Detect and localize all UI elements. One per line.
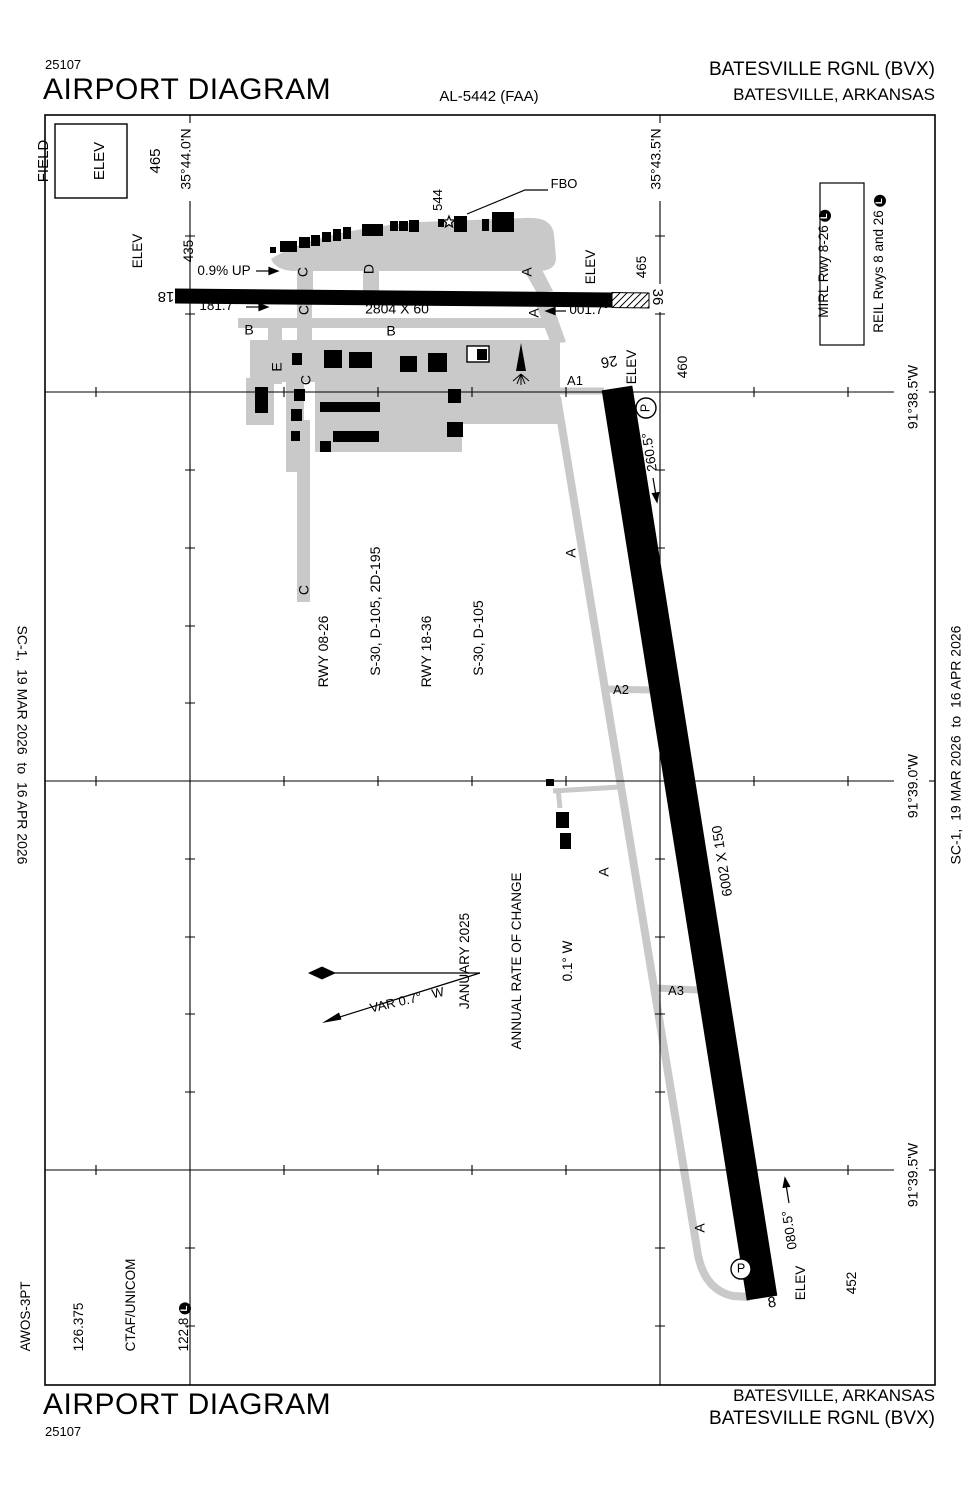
city-bottom: BATESVILLE, ARKANSAS xyxy=(733,1387,935,1405)
city-top: BATESVILLE, ARKANSAS xyxy=(733,86,935,104)
elev-block-rwy36: ELEV 465 xyxy=(547,250,667,285)
fbo-leader-line xyxy=(467,190,548,214)
taxiway-label-c: C xyxy=(296,267,311,277)
elev-label: ELEV xyxy=(583,250,598,285)
hdg-260-arrow xyxy=(653,478,656,493)
elev-value: 465 xyxy=(634,250,649,285)
reil-text: REIL Rwys 8 and 26 xyxy=(871,210,886,333)
taxiway-label-c: C xyxy=(297,585,312,595)
airport-diagram-page: 25107 AIRPORT DIAGRAM AL-5442 (FAA) BATE… xyxy=(0,0,978,1500)
page-title-bottom: AIRPORT DIAGRAM xyxy=(43,1389,331,1421)
lighting-line1: MIRL Rwy 8-26L xyxy=(814,195,833,333)
runway-number-18: 18 xyxy=(158,288,175,304)
runway-36-overrun xyxy=(612,293,649,309)
elev-label: ELEV xyxy=(624,350,639,385)
chart-number: AL-5442 (FAA) xyxy=(439,89,538,105)
taxiway-label-a: A xyxy=(597,867,612,876)
apron-layer xyxy=(238,218,566,602)
longitude-label-39-5: 91°39.5'W xyxy=(906,1143,921,1207)
rwy-0826-strength: S-30, D-105, 2D-195 xyxy=(368,547,384,688)
var-rate-label: ANNUAL RATE OF CHANGE xyxy=(508,872,524,1049)
hdg-080-arrow xyxy=(786,1187,789,1203)
parking-label-north: P xyxy=(639,404,652,412)
runway-data-block: RWY 08-26 S-30, D-105, 2D-195 RWY 18-36 … xyxy=(280,547,504,688)
taxiway-label-a: A xyxy=(527,308,542,317)
awos-freq: 126.375 xyxy=(71,1259,88,1352)
taxiway-label-a1: A1 xyxy=(567,374,583,388)
rwy-1836-label: RWY 18-36 xyxy=(419,547,435,688)
lighting-line2: REIL Rwys 8 and 26L xyxy=(869,195,888,333)
lighted-l-icon: L xyxy=(874,195,886,207)
lighted-l-icon: L xyxy=(819,210,831,222)
taxiway-label-d: D xyxy=(362,264,377,274)
lighted-l-icon: L xyxy=(179,1303,191,1315)
elev-value: 452 xyxy=(844,1266,859,1301)
obstacle-elevation-label: 544 xyxy=(431,189,445,211)
taxiway-b xyxy=(238,318,558,328)
midfield-lane-stub xyxy=(558,789,560,808)
var-date: JANUARY 2025 xyxy=(457,872,473,1049)
parking-label-south: P xyxy=(737,1262,745,1275)
airport-name-top: BATESVILLE RGNL (BVX) xyxy=(709,60,935,80)
print-code-top: 25107 xyxy=(45,58,81,72)
edition-strip-left: SC-1, 19 MAR 2026 to 16 APR 2026 xyxy=(15,626,30,865)
grade-label: 0.9% UP xyxy=(197,264,250,278)
heading-001: 001.7° xyxy=(569,303,608,317)
tank-icon xyxy=(467,346,489,362)
latitude-label-43-5: 35°43.5'N xyxy=(649,128,664,189)
elev-value: 435 xyxy=(181,234,196,269)
elev-block-rwy18: ELEV 435 xyxy=(94,234,214,269)
ctaf-label: CTAF/UNICOM xyxy=(123,1259,140,1352)
taxiway-label-a2: A2 xyxy=(613,683,629,697)
elev-label: ELEV xyxy=(793,1266,808,1301)
midfield-lane xyxy=(553,787,620,791)
rwy-1836-strength: S-30, D-105 xyxy=(471,547,487,688)
page-title-top: AIRPORT DIAGRAM xyxy=(43,74,331,106)
mirl-text: MIRL Rwy 8-26 xyxy=(816,225,831,318)
awos-label: AWOS-3PT xyxy=(18,1259,35,1352)
edition-strip-right: SC-1, 19 MAR 2026 to 16 APR 2026 xyxy=(949,626,964,865)
fbo-label: FBO xyxy=(551,177,578,191)
taxiway-label-e: E xyxy=(270,362,285,371)
var-rate-value: 0.1° W xyxy=(560,872,576,1049)
taxiway-label-b: B xyxy=(386,324,395,339)
longitude-label-39-0: 91°39.0'W xyxy=(906,754,921,818)
runway-1836-dimensions: 2804 X 60 xyxy=(365,302,429,317)
longitude-label-38-5: 91°38.5'W xyxy=(906,365,921,429)
latitude-label-44-0: 35°44.0'N xyxy=(179,128,194,189)
airport-name-bottom: BATESVILLE RGNL (BVX) xyxy=(709,1409,935,1429)
print-code-bottom: 25107 xyxy=(45,1425,81,1439)
elev-label: ELEV xyxy=(130,234,145,269)
elev-value: 460 xyxy=(675,350,690,385)
elev-block-rwy8: ELEV 452 xyxy=(757,1266,877,1301)
taxiway-label-b: B xyxy=(244,323,253,338)
magnetic-variation-block: JANUARY 2025 ANNUAL RATE OF CHANGE 0.1° … xyxy=(421,872,594,1049)
field-elev-block: FIELD ELEV 465 xyxy=(0,140,184,183)
taxiway-label-c: C xyxy=(297,305,312,315)
lighting-block: MIRL Rwy 8-26L REIL Rwys 8 and 26L xyxy=(778,195,906,333)
heading-181: 181.7° xyxy=(199,299,238,313)
taxiway-label-a: A xyxy=(693,1223,708,1232)
ctaf-freq-line: 122.8L xyxy=(176,1259,193,1352)
field-elev-line1: FIELD xyxy=(34,140,54,183)
field-elev-line2: ELEV xyxy=(90,140,110,183)
field-elev-value: 465 xyxy=(146,140,166,183)
runway-number-36: 36 xyxy=(649,289,665,306)
elev-block-rwy26: ELEV 460 xyxy=(588,350,708,385)
taxiway-label-a3: A3 xyxy=(668,984,684,998)
taxiway-label-a: A xyxy=(564,548,579,557)
taxiway-label-c: C xyxy=(299,375,314,385)
taxiway-label-a: A xyxy=(520,267,535,276)
comms-block: AWOS-3PT 126.375 CTAF/UNICOM 122.8L xyxy=(0,1259,210,1352)
rwy-0826-label: RWY 08-26 xyxy=(316,547,332,688)
ctaf-freq: 122.8 xyxy=(176,1318,191,1352)
